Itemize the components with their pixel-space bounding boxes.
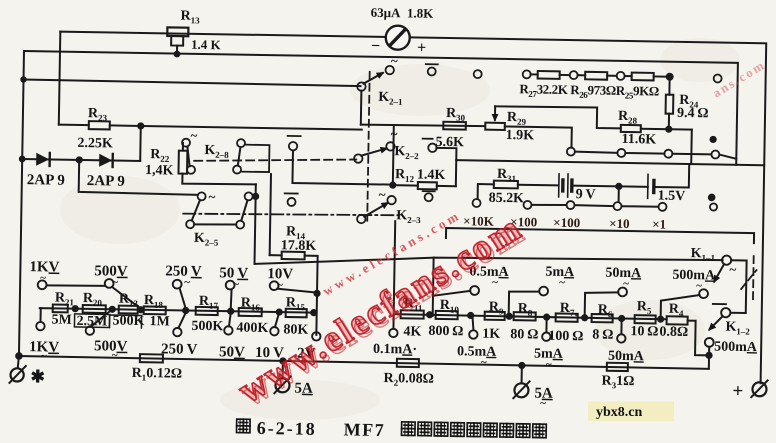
svg-text:−: − (371, 38, 380, 55)
svg-text:R31Ω: R31Ω (601, 374, 634, 391)
svg-text:4K: 4K (403, 324, 421, 339)
svg-text:~: ~ (492, 277, 498, 289)
svg-text:~: ~ (481, 357, 487, 369)
svg-text:2AP 9: 2AP 9 (87, 173, 125, 190)
svg-text:80 Ω: 80 Ω (510, 327, 538, 342)
svg-text:×100: ×100 (553, 215, 580, 230)
svg-text:50V: 50V (219, 344, 245, 360)
svg-text:1.5V: 1.5V (658, 189, 686, 204)
svg-text:~: ~ (191, 128, 198, 143)
svg-text:500K: 500K (191, 319, 223, 335)
svg-text:~: ~ (379, 187, 386, 202)
svg-text:~: ~ (391, 126, 398, 141)
svg-text:0.5mA: 0.5mA (457, 344, 497, 360)
svg-text:2.25K: 2.25K (77, 136, 113, 152)
svg-text:500V: 500V (94, 263, 128, 280)
svg-text:10 Ω: 10 Ω (630, 324, 658, 339)
svg-text:9.4 Ω: 9.4 Ω (677, 106, 709, 122)
svg-text:800 Ω: 800 Ω (428, 324, 463, 340)
svg-text:R20.08Ω: R20.08Ω (383, 371, 434, 388)
svg-text:85.2K: 85.2K (488, 191, 524, 207)
svg-text:250 V: 250 V (161, 341, 198, 358)
svg-text:~: ~ (184, 277, 190, 289)
svg-text:~: ~ (729, 262, 736, 277)
svg-text:~: ~ (540, 398, 546, 410)
svg-text:100 Ω: 100 Ω (548, 329, 583, 345)
svg-text:~: ~ (546, 359, 552, 371)
svg-text:×1: ×1 (652, 216, 666, 231)
svg-text:500V: 500V (94, 338, 128, 355)
svg-text:ybx8.cn: ybx8.cn (596, 405, 643, 420)
svg-text:17.8K: 17.8K (281, 238, 317, 254)
svg-text:6-2-18: 6-2-18 (257, 418, 317, 439)
svg-text:~: ~ (208, 189, 215, 204)
svg-text:1K: 1K (482, 327, 500, 342)
svg-text:11.6K: 11.6K (621, 132, 656, 148)
svg-text:1M: 1M (149, 314, 169, 329)
svg-text:+: + (732, 381, 743, 402)
svg-text:0.8Ω: 0.8Ω (659, 325, 688, 340)
svg-text:63μA 1.8K: 63μA 1.8K (371, 5, 435, 21)
svg-text:2AP 9: 2AP 9 (27, 172, 65, 189)
svg-text:9 V: 9 V (576, 187, 596, 202)
svg-text:1.9K: 1.9K (506, 128, 535, 143)
svg-text:~: ~ (391, 53, 398, 68)
svg-text:R10.12Ω: R10.12Ω (132, 366, 183, 383)
svg-text:500mA: 500mA (714, 339, 758, 355)
svg-text:✱: ✱ (30, 367, 45, 386)
svg-text:0.1mA·: 0.1mA· (373, 342, 417, 358)
svg-text:R12 1.4K: R12 1.4K (395, 167, 446, 184)
svg-text:1,4K: 1,4K (145, 163, 174, 178)
svg-text:5M: 5M (51, 312, 71, 327)
svg-text:500mA: 500mA (672, 268, 716, 284)
svg-text:~: ~ (112, 350, 118, 362)
svg-text:MF7: MF7 (344, 419, 386, 440)
svg-text:400K: 400K (236, 321, 268, 337)
svg-text:8 Ω: 8 Ω (592, 327, 613, 342)
svg-text:+: + (417, 40, 426, 57)
svg-text:×10: ×10 (609, 216, 630, 231)
svg-text:1.4 K: 1.4 K (191, 37, 222, 53)
svg-text:~: ~ (559, 277, 565, 289)
